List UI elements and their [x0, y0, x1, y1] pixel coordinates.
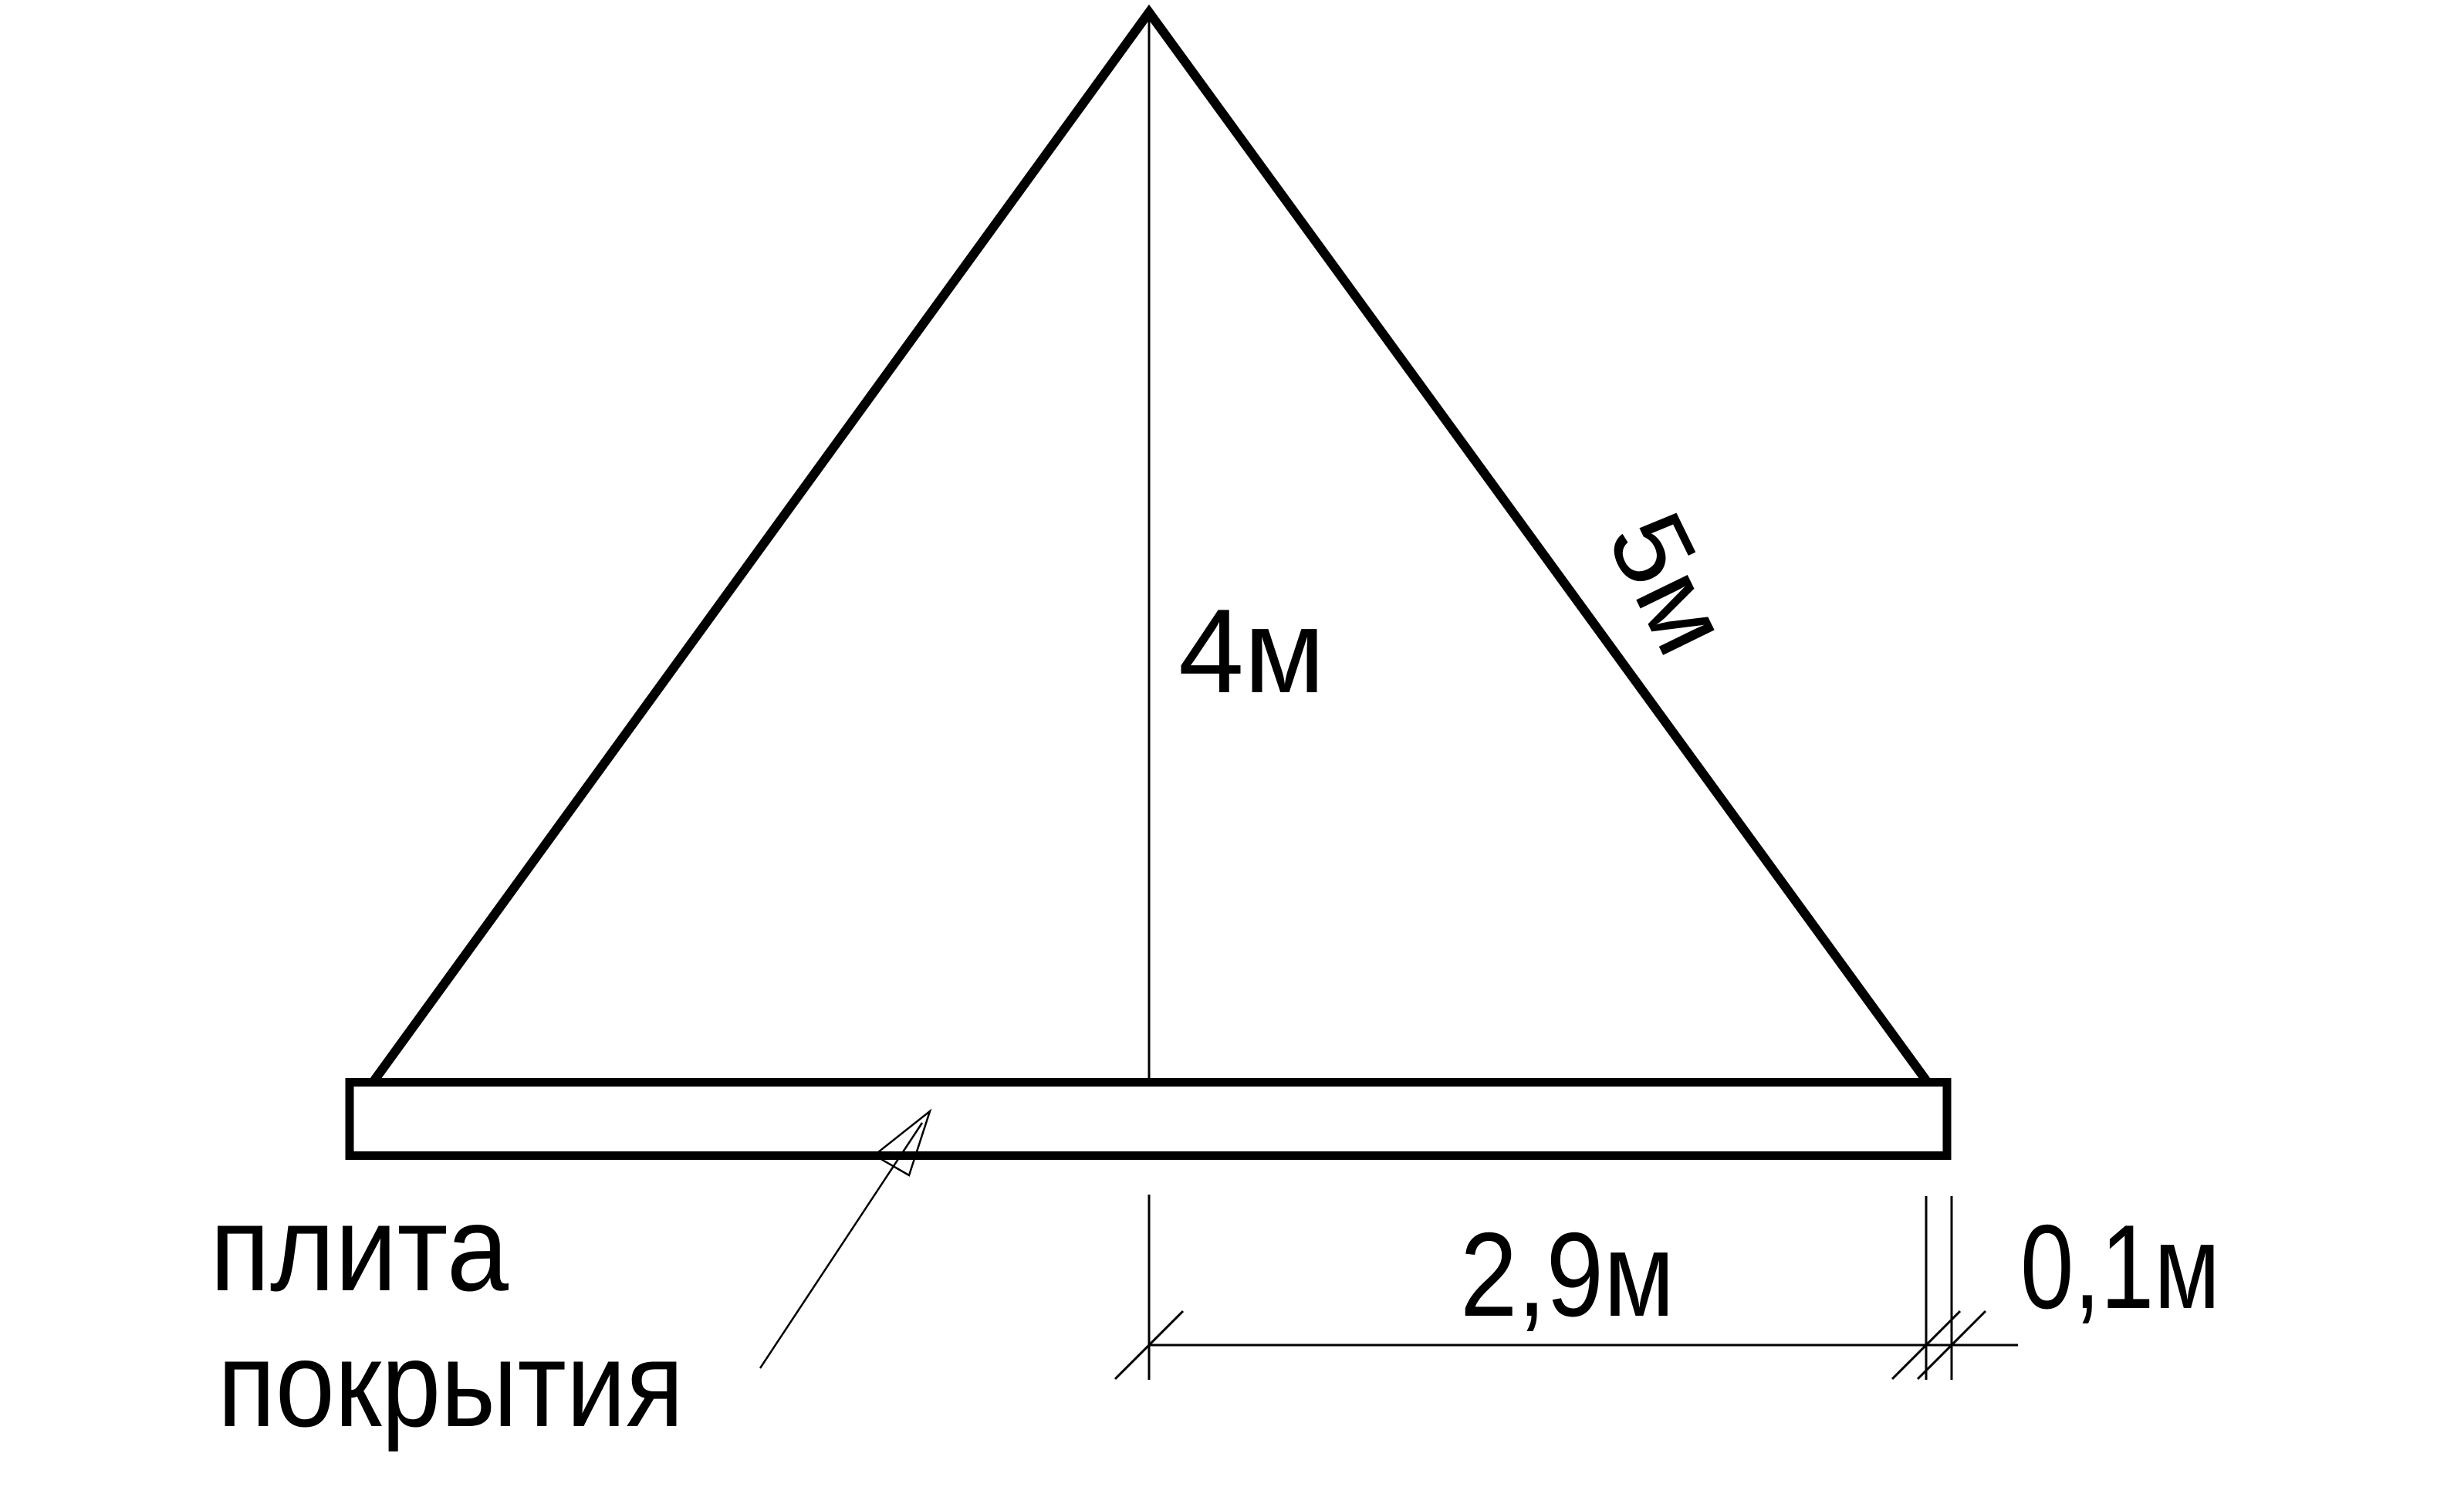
slab-label-line1: плита [210, 1181, 509, 1317]
height-dimension-label: 4м [1178, 584, 1325, 718]
half-span-dimension-label: 2,9м [1460, 1208, 1675, 1341]
drawing-canvas: 4м 5м 2,9м 0,1м плита покрытия [0, 0, 2464, 1494]
overhang-dimension-label: 0,1м [2020, 1200, 2220, 1333]
slab-label-line2: покрытия [218, 1317, 684, 1452]
roof-truss-diagram: 4м 5м 2,9м 0,1м плита покрытия [0, 0, 2464, 1494]
cover-slab-rect [350, 1083, 1947, 1156]
